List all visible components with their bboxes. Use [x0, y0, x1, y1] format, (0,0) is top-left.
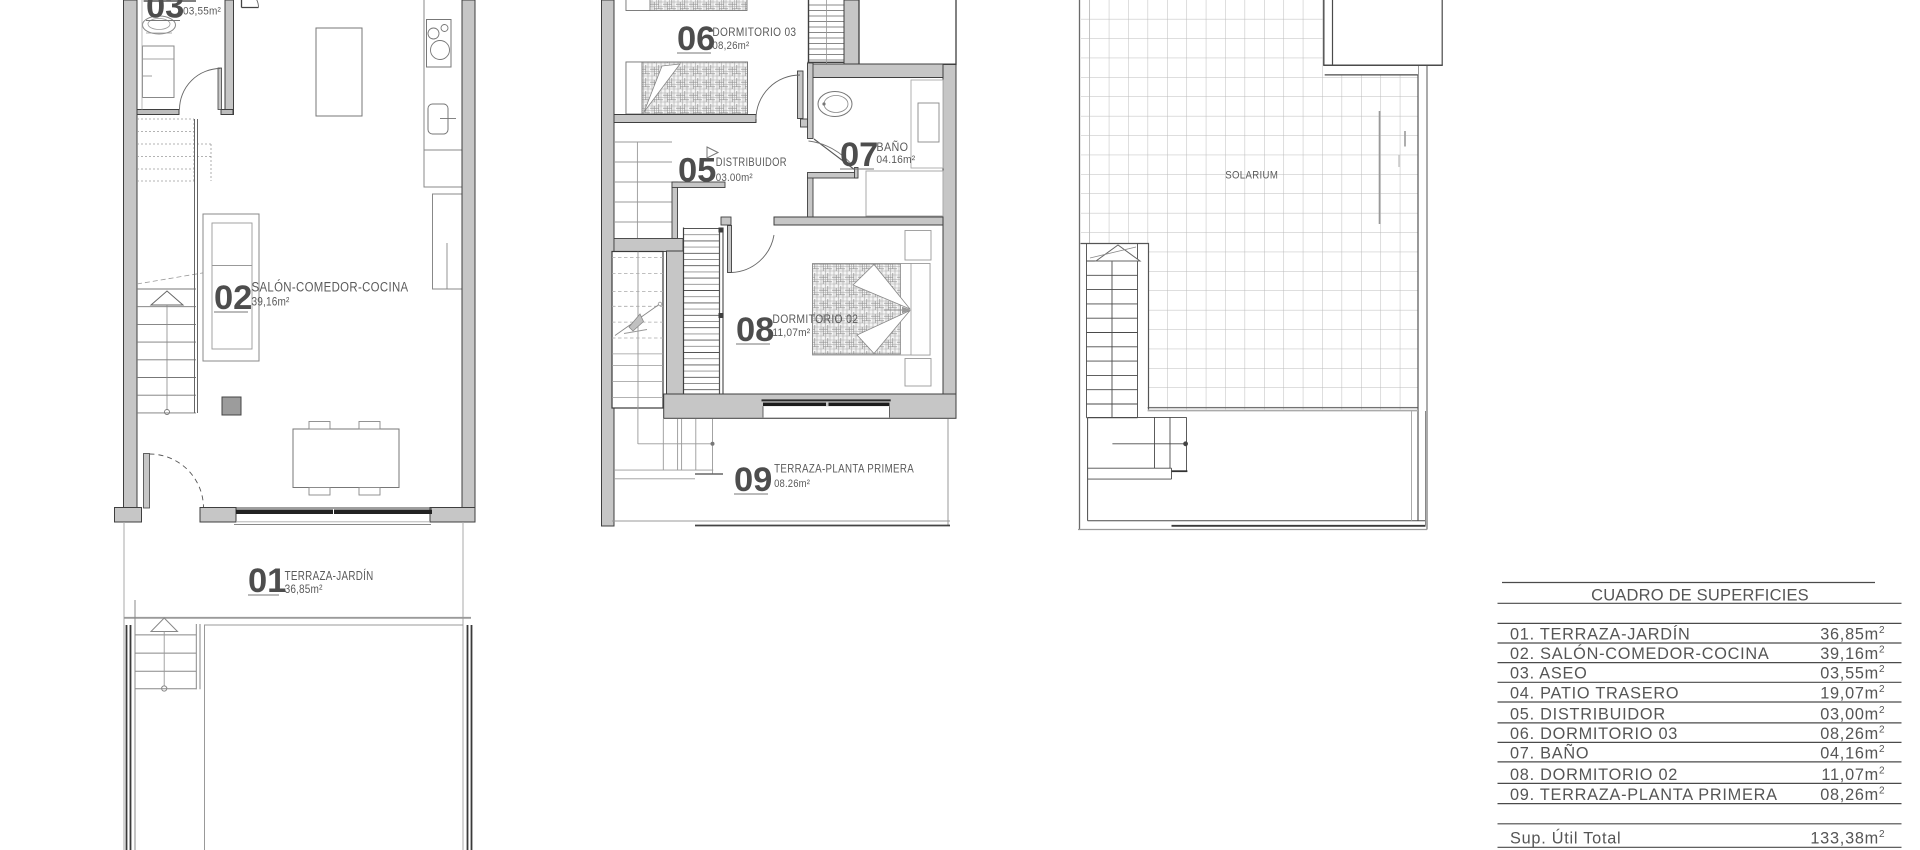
svg-text:36,85m: 36,85m [1820, 626, 1879, 644]
svg-text:2: 2 [1879, 786, 1885, 797]
svg-text:DISTRIBUIDOR: DISTRIBUIDOR [716, 155, 787, 169]
svg-text:01: 01 [248, 562, 286, 600]
svg-text:2: 2 [1879, 625, 1885, 636]
svg-text:2: 2 [1879, 664, 1885, 675]
svg-text:2: 2 [1879, 645, 1885, 656]
svg-text:TERRAZA-PLANTA PRIMERA: TERRAZA-PLANTA PRIMERA [774, 464, 914, 476]
svg-text:04,16m: 04,16m [1820, 744, 1879, 762]
svg-text:05. DISTRIBUIDOR: 05. DISTRIBUIDOR [1510, 705, 1666, 723]
svg-text:DORMITORIO 03: DORMITORIO 03 [712, 25, 796, 39]
svg-text:DORMITORIO 02: DORMITORIO 02 [772, 312, 858, 326]
svg-text:11,07m²: 11,07m² [772, 327, 810, 339]
svg-text:39,16m²: 39,16m² [252, 295, 290, 309]
svg-text:19,07m: 19,07m [1820, 684, 1879, 702]
svg-text:2: 2 [1879, 744, 1885, 755]
svg-text:2: 2 [1879, 705, 1885, 716]
svg-text:39,16m: 39,16m [1820, 645, 1879, 663]
svg-text:2: 2 [1879, 724, 1885, 735]
svg-text:07. BAÑO: 07. BAÑO [1510, 742, 1589, 762]
svg-text:08,26m: 08,26m [1820, 786, 1879, 804]
svg-text:09. TERRAZA-PLANTA PRIMERA: 09. TERRAZA-PLANTA PRIMERA [1510, 786, 1778, 804]
svg-text:2: 2 [1879, 765, 1885, 776]
svg-text:BAÑO: BAÑO [876, 140, 908, 154]
svg-text:07: 07 [840, 136, 878, 174]
svg-text:03,00m: 03,00m [1820, 705, 1879, 723]
svg-text:03,55m²: 03,55m² [183, 6, 221, 18]
svg-text:11,07m: 11,07m [1821, 766, 1879, 784]
svg-text:03.00m²: 03.00m² [716, 172, 753, 184]
svg-text:03,55m: 03,55m [1820, 665, 1879, 683]
svg-text:02: 02 [214, 279, 252, 317]
svg-text:08.26m²: 08.26m² [774, 478, 810, 490]
svg-text:02. SALÓN-COMEDOR-COCINA: 02. SALÓN-COMEDOR-COCINA [1510, 644, 1770, 663]
svg-text:TERRAZA-JARDÍN: TERRAZA-JARDÍN [285, 568, 374, 583]
svg-text:04.16m²: 04.16m² [876, 154, 915, 166]
svg-text:2: 2 [1879, 684, 1885, 695]
svg-text:SOLARIUM: SOLARIUM [1225, 170, 1278, 182]
svg-text:08: 08 [736, 311, 774, 349]
svg-text:SALÓN-COMEDOR-COCINA: SALÓN-COMEDOR-COCINA [252, 280, 409, 295]
svg-text:06: 06 [677, 20, 715, 58]
svg-text:08,26m²: 08,26m² [712, 40, 749, 52]
svg-text:Sup. Útil Total: Sup. Útil Total [1510, 829, 1621, 848]
svg-text:05: 05 [678, 152, 716, 190]
svg-text:06. DORMITORIO 03: 06. DORMITORIO 03 [1510, 725, 1678, 743]
svg-text:03: 03 [146, 0, 184, 26]
svg-text:01. TERRAZA-JARDÍN: 01. TERRAZA-JARDÍN [1510, 625, 1691, 644]
svg-text:03. ASEO: 03. ASEO [1510, 665, 1588, 683]
svg-text:36,85m²: 36,85m² [285, 582, 323, 596]
svg-text:08,26m: 08,26m [1820, 725, 1879, 743]
svg-text:09: 09 [734, 461, 772, 499]
svg-text:08. DORMITORIO 02: 08. DORMITORIO 02 [1510, 766, 1678, 784]
svg-text:2: 2 [1879, 829, 1885, 840]
svg-text:04. PATIO TRASERO: 04. PATIO TRASERO [1510, 684, 1679, 702]
svg-text:CUADRO DE SUPERFICIES: CUADRO DE SUPERFICIES [1591, 587, 1809, 605]
svg-text:133,38m: 133,38m [1810, 830, 1879, 848]
